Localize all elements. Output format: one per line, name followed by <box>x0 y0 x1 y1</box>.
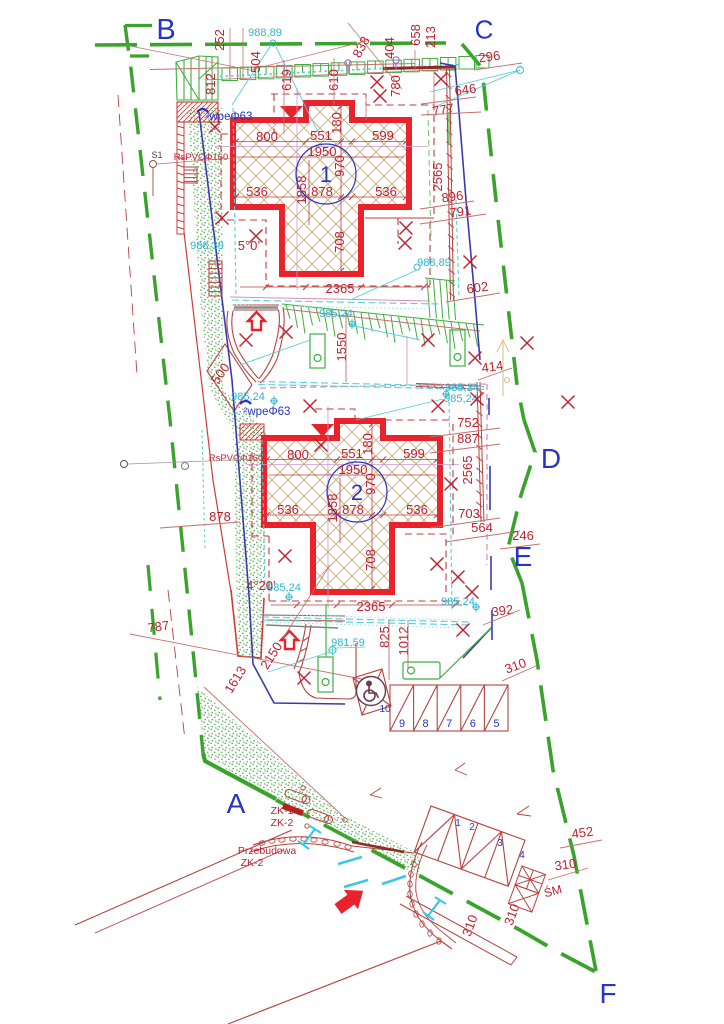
svg-text:988,89: 988,89 <box>417 257 451 269</box>
svg-text:619: 619 <box>279 69 294 91</box>
svg-text:878: 878 <box>342 502 364 517</box>
svg-text:ZK-2: ZK-2 <box>241 857 264 869</box>
svg-text:414: 414 <box>481 358 505 376</box>
svg-text:Przebudowa: Przebudowa <box>238 845 297 857</box>
svg-text:708: 708 <box>363 549 378 571</box>
svg-text:658: 658 <box>408 24 423 46</box>
svg-text:B: B <box>156 14 175 46</box>
svg-text:2365: 2365 <box>357 599 386 614</box>
svg-text:812: 812 <box>203 73 218 95</box>
svg-text:1550: 1550 <box>334 333 349 362</box>
svg-text:985,24: 985,24 <box>231 391 265 403</box>
svg-text:599: 599 <box>372 128 394 143</box>
svg-text:RsPVCΦ160: RsPVCΦ160 <box>209 453 264 464</box>
svg-text:2565: 2565 <box>460 456 475 485</box>
svg-text:610: 610 <box>326 69 341 91</box>
svg-text:970: 970 <box>332 155 347 177</box>
svg-text:703: 703 <box>458 506 480 521</box>
svg-text:878: 878 <box>209 509 231 524</box>
svg-text:452: 452 <box>571 824 595 842</box>
svg-text:ZK-2: ZK-2 <box>271 817 294 829</box>
svg-text:1858: 1858 <box>325 494 340 523</box>
svg-text:3: 3 <box>497 838 503 849</box>
svg-text:252: 252 <box>212 29 227 51</box>
svg-text:6: 6 <box>470 718 476 730</box>
svg-text:564: 564 <box>471 520 493 535</box>
svg-text:310: 310 <box>554 856 578 874</box>
svg-text:708: 708 <box>332 231 347 253</box>
svg-text:²wpeΦ63: ²wpeΦ63 <box>244 406 291 418</box>
svg-text:9: 9 <box>399 718 405 730</box>
svg-text:536: 536 <box>246 184 268 199</box>
svg-text:RsPVCΦ160: RsPVCΦ160 <box>174 152 229 163</box>
svg-text:536: 536 <box>406 502 428 517</box>
svg-text:A: A <box>227 788 246 819</box>
svg-text:825: 825 <box>377 626 392 648</box>
svg-text:5°0’: 5°0’ <box>238 238 261 253</box>
svg-text:988,39: 988,39 <box>190 240 224 252</box>
svg-text:²wpeΦ63: ²wpeΦ63 <box>206 111 253 123</box>
svg-text:985,24: 985,24 <box>441 596 475 608</box>
svg-text:F: F <box>599 978 616 1009</box>
svg-text:1858: 1858 <box>294 176 309 205</box>
svg-text:C: C <box>475 15 494 45</box>
svg-text:296: 296 <box>478 48 502 66</box>
svg-text:752: 752 <box>457 415 479 430</box>
svg-text:2365: 2365 <box>326 281 355 296</box>
svg-text:599: 599 <box>403 446 425 461</box>
svg-text:180: 180 <box>329 112 344 134</box>
svg-text:D: D <box>541 443 561 474</box>
svg-text:602: 602 <box>466 279 490 297</box>
svg-text:404: 404 <box>382 37 397 59</box>
svg-text:1012: 1012 <box>396 627 411 656</box>
svg-text:2: 2 <box>469 822 475 833</box>
svg-text:4: 4 <box>519 850 525 861</box>
svg-text:2565: 2565 <box>430 163 445 192</box>
svg-text:S1: S1 <box>151 150 162 160</box>
svg-text:8: 8 <box>423 718 429 730</box>
svg-text:800: 800 <box>256 129 278 144</box>
svg-text:787: 787 <box>147 618 171 636</box>
svg-text:887: 887 <box>457 431 479 446</box>
svg-text:213: 213 <box>423 26 438 48</box>
svg-text:ZK-1: ZK-1 <box>271 805 294 817</box>
svg-text:5: 5 <box>493 718 499 730</box>
svg-text:536: 536 <box>277 502 299 517</box>
svg-text:4°20’: 4°20’ <box>246 578 276 593</box>
svg-text:988,89: 988,89 <box>248 27 282 39</box>
svg-text:878: 878 <box>311 184 333 199</box>
svg-text:800: 800 <box>287 447 309 462</box>
svg-text:780: 780 <box>388 75 403 97</box>
svg-text:E: E <box>514 541 533 572</box>
svg-text:1: 1 <box>455 818 461 829</box>
svg-text:536: 536 <box>375 184 397 199</box>
svg-text:180: 180 <box>360 433 375 455</box>
svg-text:646: 646 <box>454 81 478 99</box>
svg-text:7: 7 <box>446 718 452 730</box>
svg-text:985,24: 985,24 <box>319 308 353 320</box>
svg-text:970: 970 <box>363 473 378 495</box>
svg-text:10: 10 <box>379 704 391 715</box>
